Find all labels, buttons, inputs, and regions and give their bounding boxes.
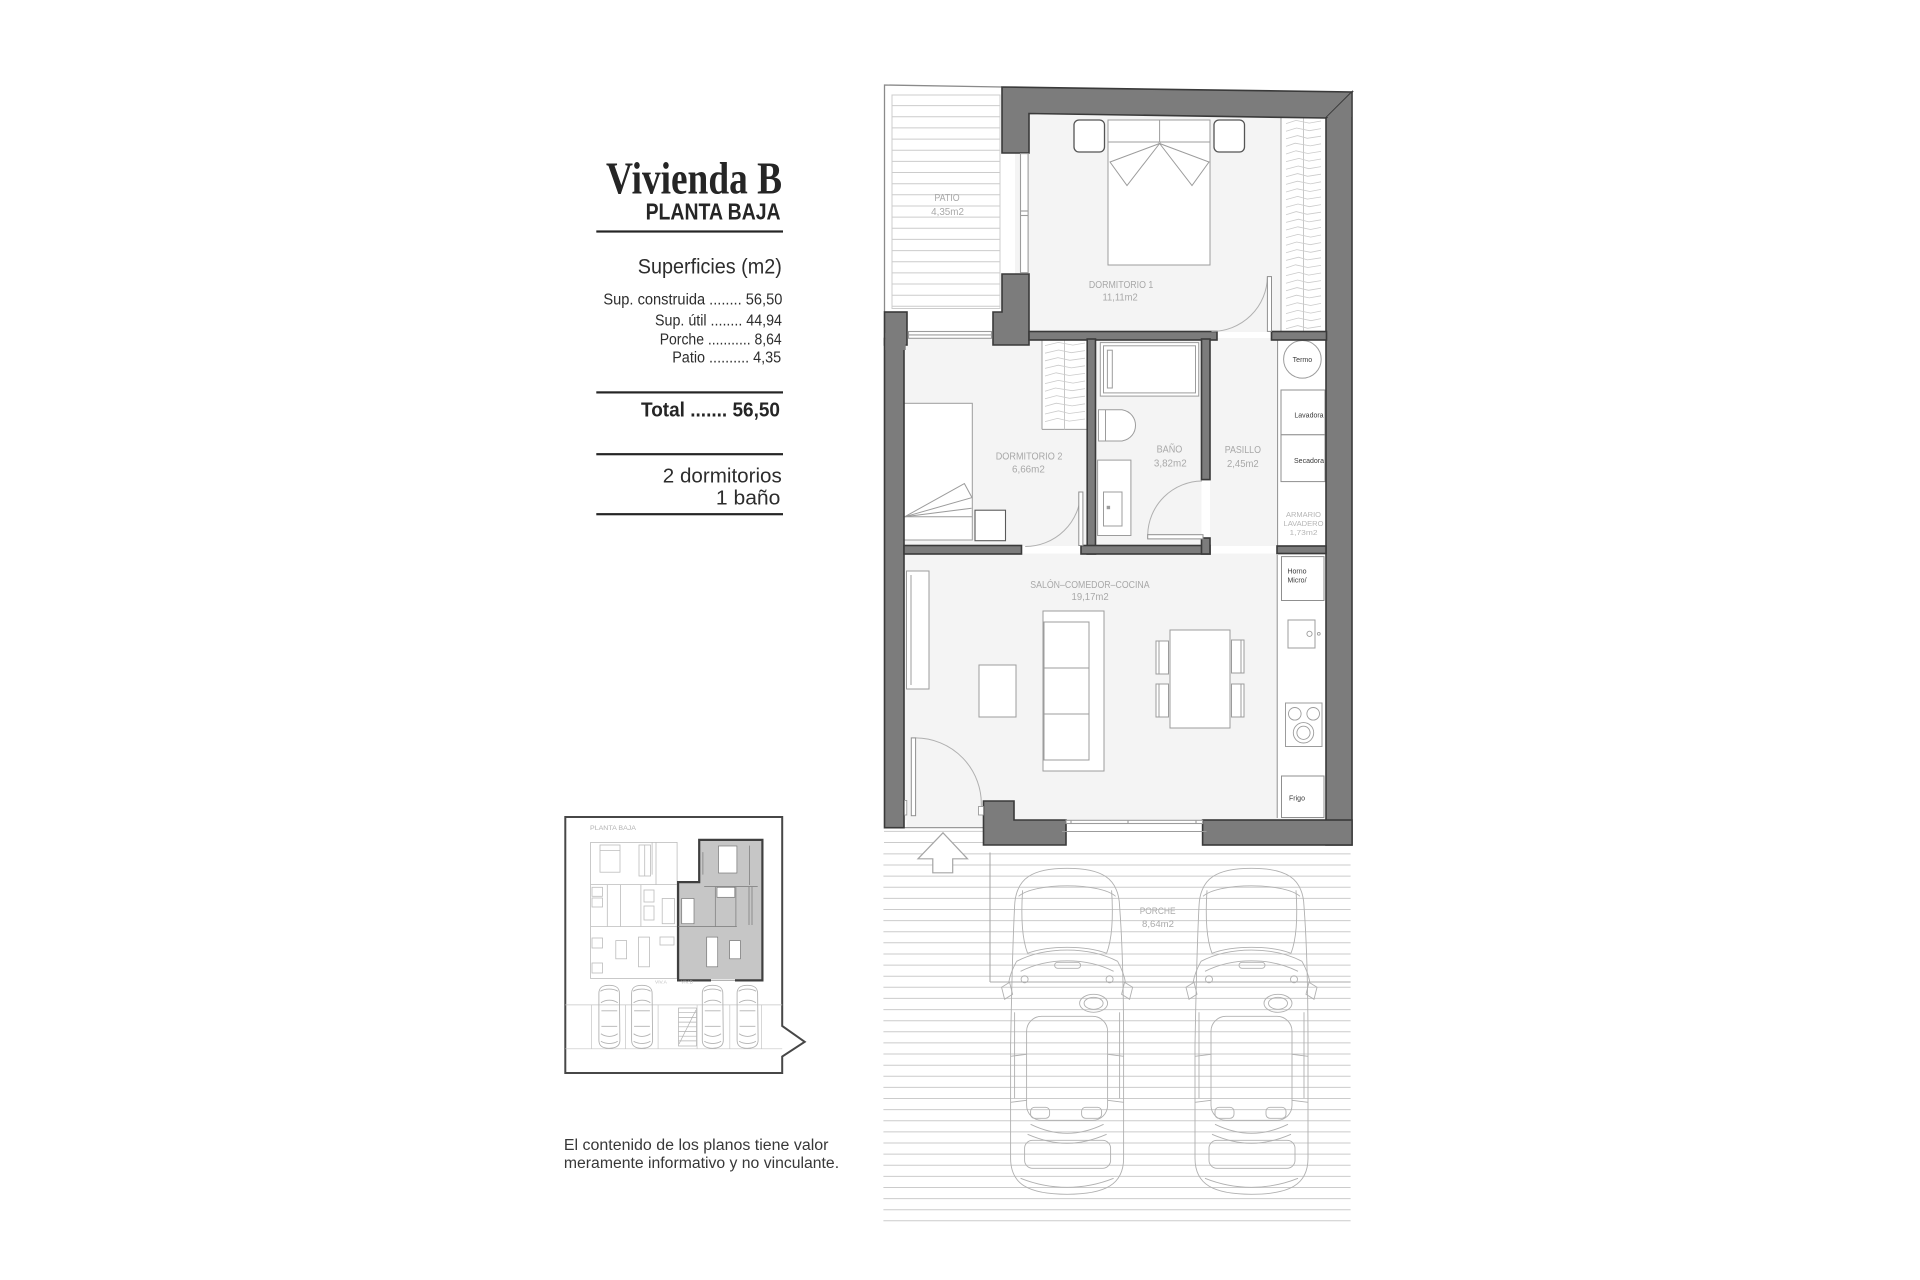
- svg-text:2 dormitorios: 2 dormitorios: [663, 465, 782, 488]
- svg-text:Sup. construida ........ 56,50: Sup. construida ........ 56,50: [603, 292, 782, 309]
- svg-text:3,82m2: 3,82m2: [1154, 458, 1187, 470]
- svg-text:LAVADERO: LAVADERO: [1284, 519, 1324, 528]
- svg-text:VIV.A: VIV.A: [655, 980, 668, 986]
- svg-text:SALÓN–COMEDOR–COCINA: SALÓN–COMEDOR–COCINA: [1030, 578, 1149, 591]
- svg-text:Superficies (m2): Superficies (m2): [638, 255, 782, 279]
- svg-text:Lavadora: Lavadora: [1294, 413, 1323, 420]
- svg-text:Porche ........... 8,64: Porche ........... 8,64: [660, 332, 782, 349]
- svg-text:PATIO: PATIO: [934, 192, 959, 204]
- svg-text:2,45m2: 2,45m2: [1227, 458, 1259, 470]
- svg-text:Frigo: Frigo: [1289, 796, 1305, 803]
- svg-text:Micro/: Micro/: [1287, 578, 1306, 585]
- svg-text:Total ....... 56,50: Total ....... 56,50: [641, 399, 780, 422]
- svg-text:11,11m2: 11,11m2: [1103, 292, 1138, 304]
- svg-text:19,17m2: 19,17m2: [1072, 591, 1109, 603]
- svg-text:PORCHE: PORCHE: [1140, 906, 1176, 917]
- svg-text:1,73m2: 1,73m2: [1290, 528, 1318, 537]
- svg-text:Sup. útil ........ 44,94: Sup. útil ........ 44,94: [655, 313, 782, 330]
- svg-text:8,64m2: 8,64m2: [1142, 919, 1174, 930]
- svg-text:DORMITORIO 2: DORMITORIO 2: [996, 450, 1063, 462]
- svg-text:PLANTA BAJA: PLANTA BAJA: [646, 199, 781, 225]
- svg-text:Patio .......... 4,35: Patio .......... 4,35: [672, 350, 781, 367]
- svg-text:Termo: Termo: [1293, 357, 1313, 364]
- svg-text:PLANTA BAJA: PLANTA BAJA: [590, 825, 636, 832]
- svg-text:1 baño: 1 baño: [716, 487, 781, 510]
- svg-text:ARMARIO: ARMARIO: [1286, 510, 1321, 519]
- svg-text:6,66m2: 6,66m2: [1012, 463, 1045, 475]
- svg-text:El contenido de los planos tie: El contenido de los planos tiene valor: [564, 1137, 829, 1154]
- svg-text:Secadora: Secadora: [1294, 458, 1324, 465]
- svg-text:PASILLO: PASILLO: [1225, 444, 1261, 456]
- svg-text:Vivienda B: Vivienda B: [606, 153, 782, 204]
- svg-text:4,35m2: 4,35m2: [931, 206, 964, 218]
- svg-text:BAÑO: BAÑO: [1157, 442, 1183, 455]
- svg-text:DORMITORIO 1: DORMITORIO 1: [1089, 279, 1154, 291]
- svg-text:meramente informativo y no vin: meramente informativo y no vinculante.: [564, 1155, 839, 1172]
- svg-text:Horno: Horno: [1287, 569, 1306, 576]
- svg-text:VIV.B: VIV.B: [681, 980, 693, 986]
